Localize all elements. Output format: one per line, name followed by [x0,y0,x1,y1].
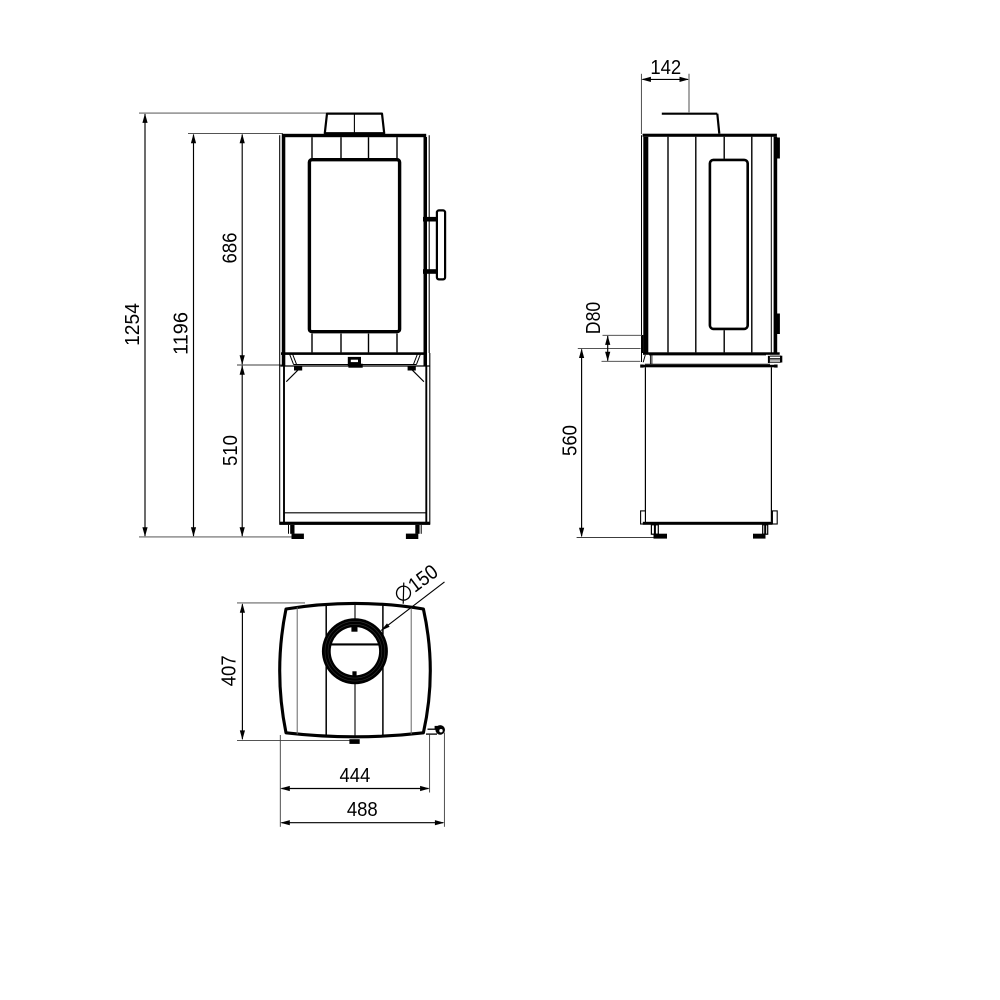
svg-text:444: 444 [339,764,370,787]
svg-text:1196: 1196 [169,312,192,355]
svg-text:D80: D80 [582,302,605,334]
svg-text:142: 142 [650,56,681,79]
svg-text:510: 510 [219,435,242,466]
svg-text:488: 488 [347,798,378,821]
svg-text:407: 407 [218,655,241,686]
svg-text:1254: 1254 [121,303,144,346]
svg-text:686: 686 [218,233,241,264]
svg-text:560: 560 [558,425,581,456]
